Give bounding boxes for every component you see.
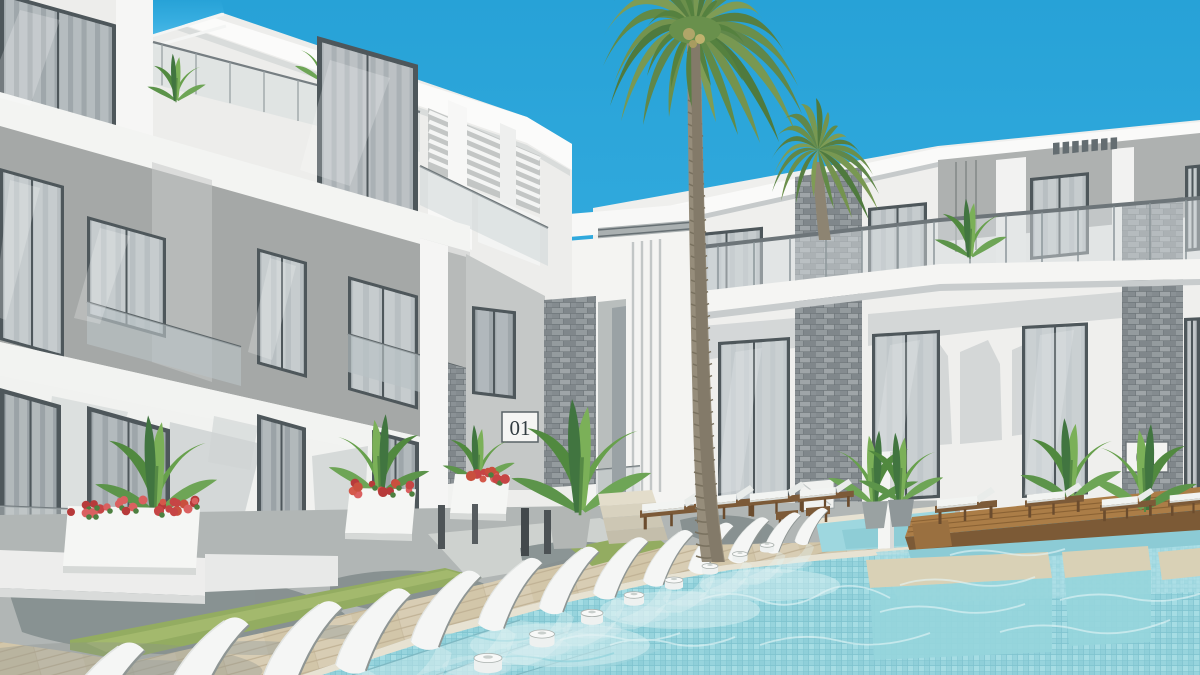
- svg-text:01: 01: [510, 416, 531, 440]
